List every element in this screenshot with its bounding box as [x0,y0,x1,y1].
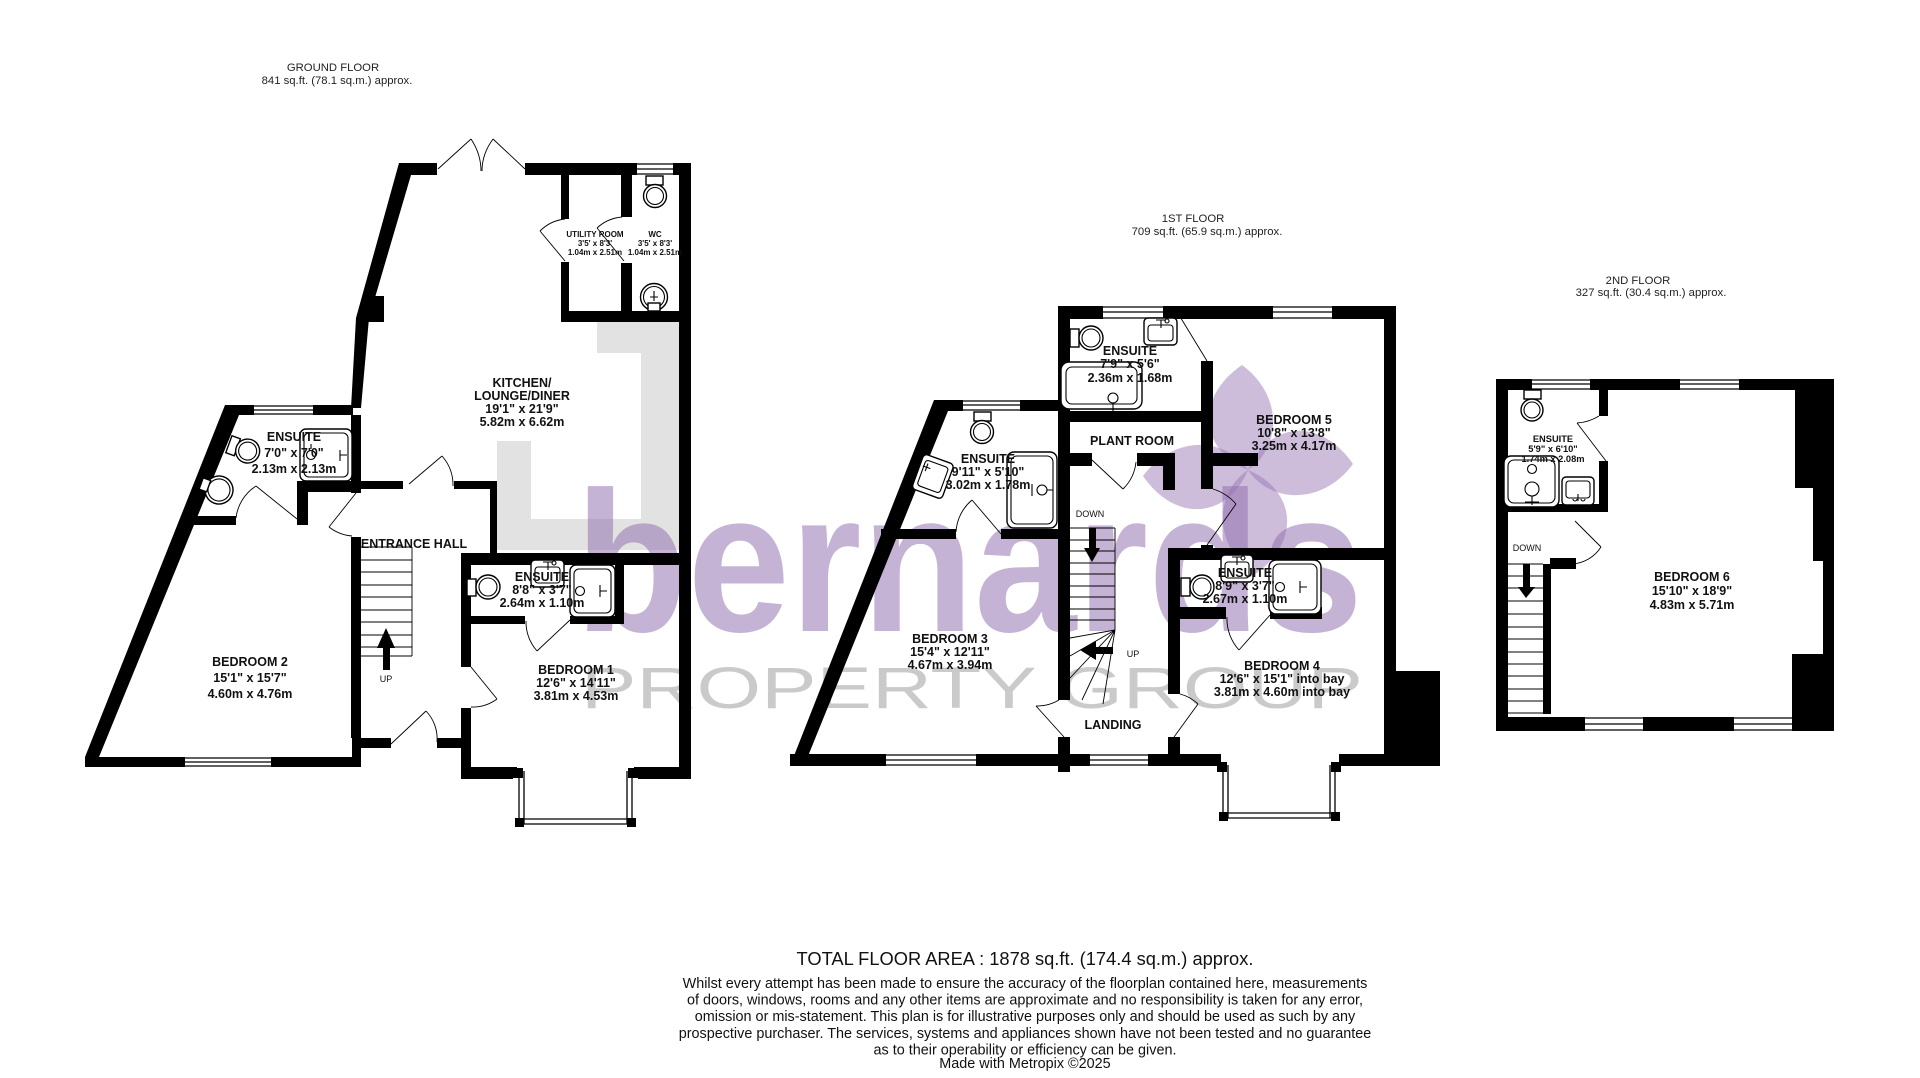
svg-text:1.04m x 2.51m: 1.04m x 2.51m [628,248,682,257]
svg-text:ENTRANCE HALL: ENTRANCE HALL [361,537,468,551]
svg-text:BEDROOM 1: BEDROOM 1 [538,663,614,677]
svg-text:15'4" x 12'11": 15'4" x 12'11" [910,645,990,659]
svg-text:12'6" x 14'11": 12'6" x 14'11" [536,676,616,690]
svg-text:UTILITY ROOM: UTILITY ROOM [566,230,624,239]
svg-text:1ST FLOOR: 1ST FLOOR [1162,213,1225,225]
svg-text:4.83m x 5.71m: 4.83m x 5.71m [1650,598,1735,612]
svg-text:KITCHEN/: KITCHEN/ [492,376,552,390]
svg-text:2.13m x 2.13m: 2.13m x 2.13m [252,462,337,476]
svg-text:1.04m x 2.51m: 1.04m x 2.51m [568,248,622,257]
svg-text:19'1" x 21'9": 19'1" x 21'9" [485,402,558,416]
svg-text:5.82m x 6.62m: 5.82m x 6.62m [480,415,565,429]
svg-text:7'0" x 7'0": 7'0" x 7'0" [264,446,324,460]
svg-text:ENSUITE: ENSUITE [1218,566,1272,580]
svg-text:UP: UP [1127,649,1140,659]
svg-text:2.36m x 1.68m: 2.36m x 1.68m [1088,371,1173,385]
svg-text:BEDROOM 2: BEDROOM 2 [212,655,288,669]
svg-text:841 sq.ft. (78.1 sq.m.) approx: 841 sq.ft. (78.1 sq.m.) approx. [262,75,413,87]
svg-text:327 sq.ft. (30.4 sq.m.) approx: 327 sq.ft. (30.4 sq.m.) approx. [1576,287,1727,299]
svg-text:2ND FLOOR: 2ND FLOOR [1606,275,1671,287]
svg-text:3.81m x 4.53m: 3.81m x 4.53m [534,689,619,703]
svg-text:UP: UP [380,674,393,684]
svg-text:BEDROOM 5: BEDROOM 5 [1256,413,1332,427]
svg-text:709 sq.ft. (65.9 sq.m.) approx: 709 sq.ft. (65.9 sq.m.) approx. [1132,226,1283,238]
svg-text:2.67m x 1.10m: 2.67m x 1.10m [1203,592,1288,606]
svg-text:1.74m x 2.08m: 1.74m x 2.08m [1521,454,1584,464]
svg-text:12'6" x 15'1" into bay: 12'6" x 15'1" into bay [1220,672,1345,686]
svg-text:of doors, windows, rooms and a: of doors, windows, rooms and any other i… [687,993,1363,1009]
svg-text:7'9" x 5'6": 7'9" x 5'6" [1100,357,1160,371]
svg-text:ENSUITE: ENSUITE [515,570,569,584]
svg-text:8'8" x 3'7": 8'8" x 3'7" [512,583,572,597]
svg-text:BEDROOM 3: BEDROOM 3 [912,632,988,646]
svg-text:10'8" x 13'8": 10'8" x 13'8" [1257,426,1330,440]
svg-text:prospective purchaser. The ser: prospective purchaser. The services, sys… [679,1026,1372,1042]
svg-text:3.25m x 4.17m: 3.25m x 4.17m [1252,439,1337,453]
svg-text:LOUNGE/DINER: LOUNGE/DINER [474,389,570,403]
svg-text:9'11" x 5'10": 9'11" x 5'10" [952,465,1025,479]
svg-text:LANDING: LANDING [1085,718,1142,732]
svg-text:ENSUITE: ENSUITE [1533,434,1573,444]
svg-text:BEDROOM 4: BEDROOM 4 [1244,659,1320,673]
svg-text:3.02m x 1.78m: 3.02m x 1.78m [946,478,1031,492]
svg-text:5'9" x 6'10": 5'9" x 6'10" [1528,444,1577,454]
svg-text:3'5' x 8'3': 3'5' x 8'3' [578,239,612,248]
svg-text:Made with Metropix ©2025: Made with Metropix ©2025 [939,1056,1110,1072]
svg-text:ENSUITE: ENSUITE [961,452,1015,466]
svg-text:DOWN: DOWN [1076,509,1105,519]
svg-text:2.64m x 1.10m: 2.64m x 1.10m [500,596,585,610]
svg-text:15'1" x 15'7": 15'1" x 15'7" [213,671,286,685]
svg-text:BEDROOM 6: BEDROOM 6 [1654,570,1730,584]
svg-text:4.67m x 3.94m: 4.67m x 3.94m [908,658,993,672]
svg-text:ENSUITE: ENSUITE [1103,344,1157,358]
svg-text:omission or mis-statement. Thi: omission or mis-statement. This plan is … [695,1009,1356,1025]
svg-text:15'10" x 18'9": 15'10" x 18'9" [1652,584,1732,598]
svg-text:3.81m x 4.60m into bay: 3.81m x 4.60m into bay [1214,685,1350,699]
svg-text:3'5' x 8'3': 3'5' x 8'3' [638,239,672,248]
svg-text:WC: WC [648,230,662,239]
svg-text:Whilst every attempt has been: Whilst every attempt has been made to en… [683,976,1368,992]
svg-text:GROUND FLOOR: GROUND FLOOR [287,62,379,74]
svg-text:ENSUITE: ENSUITE [267,430,321,444]
svg-text:PLANT ROOM: PLANT ROOM [1090,434,1174,448]
svg-text:TOTAL FLOOR AREA : 1878 sq.ft.: TOTAL FLOOR AREA : 1878 sq.ft. (174.4 sq… [797,948,1254,969]
svg-text:DOWN: DOWN [1513,543,1542,553]
svg-text:8'9" x 3'7": 8'9" x 3'7" [1215,579,1275,593]
svg-text:4.60m x 4.76m: 4.60m x 4.76m [208,687,293,701]
